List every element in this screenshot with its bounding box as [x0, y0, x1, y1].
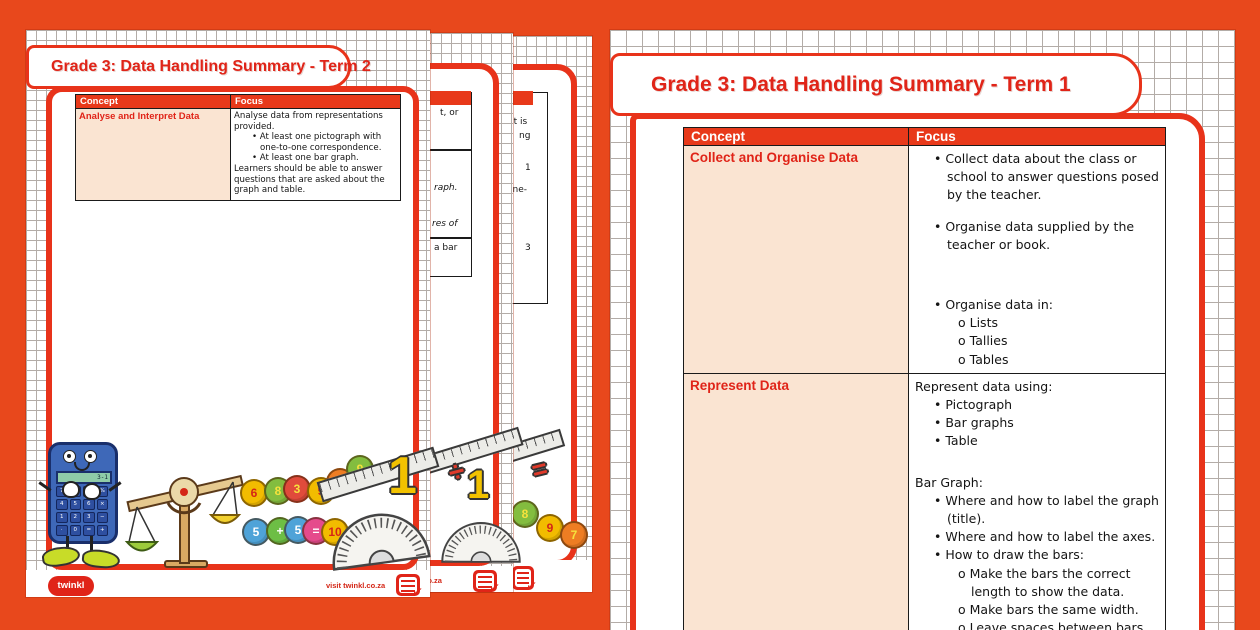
text-fragment: 1	[525, 163, 531, 173]
focus-line: • Collect data about the class or school…	[915, 150, 1161, 205]
focus-cell: Represent data using:• Pictograph• Bar g…	[909, 373, 1166, 630]
calculator-key: 0	[70, 525, 82, 536]
focus-line: • Table	[915, 432, 1161, 450]
calculator-key: ×	[97, 499, 109, 510]
resource-preview: It is ng 1 one- 3 = 897 l.co.za ✓ t, or …	[0, 0, 1260, 630]
concept-cell: Represent Data	[684, 373, 909, 630]
quality-badge-icon: ✓	[473, 570, 497, 592]
calculator-key: 3	[83, 512, 95, 523]
term1-page: Grade 3: Data Handling Summary - Term 1 …	[610, 30, 1235, 630]
focus-line: Learners should be able to answer questi…	[234, 164, 397, 196]
focus-line: o Tables	[915, 351, 1161, 369]
col-header-focus: Focus	[909, 128, 1166, 146]
focus-cell: • Collect data about the class or school…	[909, 146, 1166, 374]
focus-line: Represent data using:	[915, 378, 1161, 396]
col-header-concept: Concept	[76, 95, 231, 109]
col-header-concept: Concept	[684, 128, 909, 146]
focus-line: o Make bars the same width.	[915, 601, 1161, 619]
calculator-key: ·	[56, 525, 68, 536]
focus-line: • How to draw the bars:	[915, 546, 1161, 564]
text-fragment: It is	[511, 117, 527, 127]
focus-line: • Bar graphs	[915, 414, 1161, 432]
focus-cell: Analyse data from representations provid…	[231, 109, 401, 201]
concept-cell: Analyse and Interpret Data	[76, 109, 231, 201]
concept-cell: Collect and Organise Data	[684, 146, 909, 374]
focus-line: • Pictograph	[915, 396, 1161, 414]
visit-url: visit twinkl.co.za	[326, 581, 385, 590]
text-fragment: res of	[432, 219, 457, 229]
page-title: Grade 3: Data Handling Summary - Term 2	[51, 58, 371, 76]
text-fragment: 3	[525, 243, 531, 253]
focus-line: • Where and how to label the axes.	[915, 528, 1161, 546]
text-fragment: t, or	[440, 108, 458, 118]
calculator-key: +	[97, 525, 109, 536]
focus-line: Analyse data from representations provid…	[234, 111, 397, 132]
text-fragment: raph.	[434, 183, 458, 193]
calculator-key: 2	[70, 512, 82, 523]
page-title: Grade 3: Data Handling Summary - Term 1	[651, 73, 1071, 97]
calculator-key: −	[97, 512, 109, 523]
term1-summary-table: Concept Focus Collect and Organise Data …	[683, 127, 1166, 630]
balance-scale-icon	[121, 445, 286, 570]
focus-line: o Make the bars the correct length to sh…	[915, 565, 1161, 601]
protractor-icon	[439, 515, 523, 565]
focus-line: • At least one bar graph.	[234, 153, 397, 164]
quality-badge-icon: ✓	[396, 574, 420, 596]
term2-page: Grade 3: Data Handling Summary - Term 2 …	[26, 30, 430, 597]
calculator-key: 6	[83, 499, 95, 510]
term2-summary-table: Concept Focus Analyse and Interpret Data…	[75, 94, 401, 201]
protractor-icon	[322, 498, 434, 574]
number-ball: 7	[560, 521, 588, 549]
hand-icon	[83, 483, 101, 500]
focus-line: • At least one pictograph with one-to-on…	[234, 132, 397, 153]
focus-line: o Lists	[915, 314, 1161, 332]
big-one-numeral: 1	[467, 465, 489, 505]
focus-line: Bar Graph:	[915, 474, 1161, 492]
focus-line: • Organise data supplied by the teacher …	[915, 218, 1161, 254]
brand-name: twinkl	[58, 580, 85, 591]
calculator-key: 1	[56, 512, 68, 523]
focus-line: • Organise data in:	[915, 296, 1161, 314]
calculator-key: 5	[70, 499, 82, 510]
term1-title-pill: Grade 3: Data Handling Summary - Term 1	[610, 53, 1142, 116]
twinkl-logo: twinkl	[48, 576, 94, 596]
focus-line: • Where and how to label the graph (titl…	[915, 492, 1161, 528]
col-header-focus: Focus	[231, 95, 401, 109]
focus-line: o Leave spaces between bars.	[915, 619, 1161, 630]
text-fragment: ng	[519, 131, 530, 141]
focus-line: o Tallies	[915, 332, 1161, 350]
quality-badge-icon: ✓	[512, 566, 534, 590]
term2-title-pill: Grade 3: Data Handling Summary - Term 2	[26, 45, 351, 89]
big-one-numeral: 1	[388, 450, 417, 502]
calculator-key: 4	[56, 499, 68, 510]
hand-icon	[62, 481, 80, 498]
text-fragment: a bar	[434, 243, 457, 253]
calculator-key: =	[83, 525, 95, 536]
